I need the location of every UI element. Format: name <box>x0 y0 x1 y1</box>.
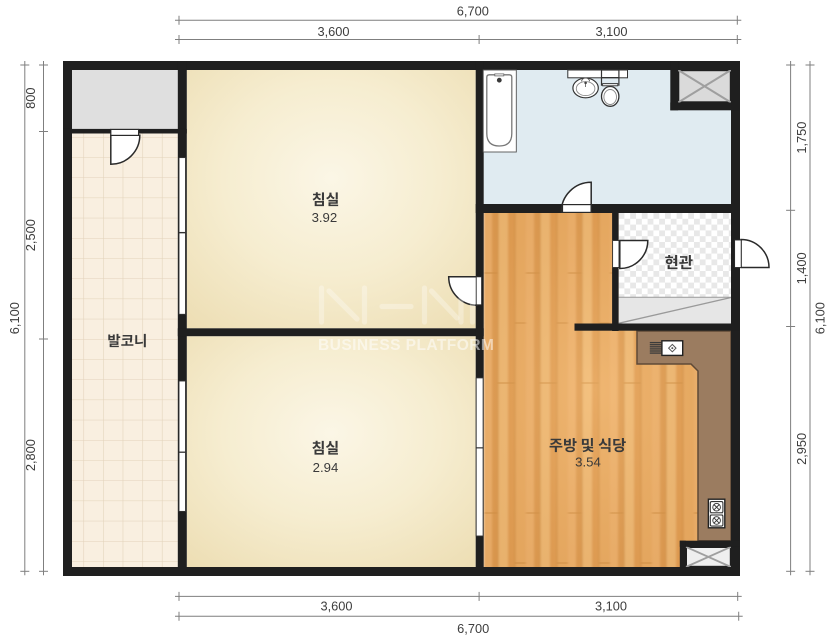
svg-text:1,400: 1,400 <box>794 252 809 284</box>
svg-text:3,100: 3,100 <box>595 599 627 614</box>
svg-text:3.54: 3.54 <box>575 454 601 469</box>
svg-text:2,800: 2,800 <box>23 439 38 471</box>
svg-text:3,600: 3,600 <box>320 599 352 614</box>
svg-text:3.92: 3.92 <box>312 210 338 225</box>
svg-text:6,100: 6,100 <box>7 302 22 334</box>
svg-text:2,950: 2,950 <box>794 433 809 465</box>
svg-text:2,500: 2,500 <box>23 219 38 251</box>
svg-text:2.94: 2.94 <box>313 460 339 475</box>
svg-text:3,600: 3,600 <box>317 24 349 39</box>
svg-text:800: 800 <box>23 88 38 109</box>
svg-text:1,750: 1,750 <box>794 122 809 154</box>
svg-text:6,100: 6,100 <box>813 302 828 334</box>
svg-text:3,100: 3,100 <box>595 24 627 39</box>
svg-text:BUSINESS PLATFORM: BUSINESS PLATFORM <box>318 337 494 354</box>
svg-text:6,700: 6,700 <box>457 621 489 636</box>
svg-text:6,700: 6,700 <box>457 4 489 19</box>
